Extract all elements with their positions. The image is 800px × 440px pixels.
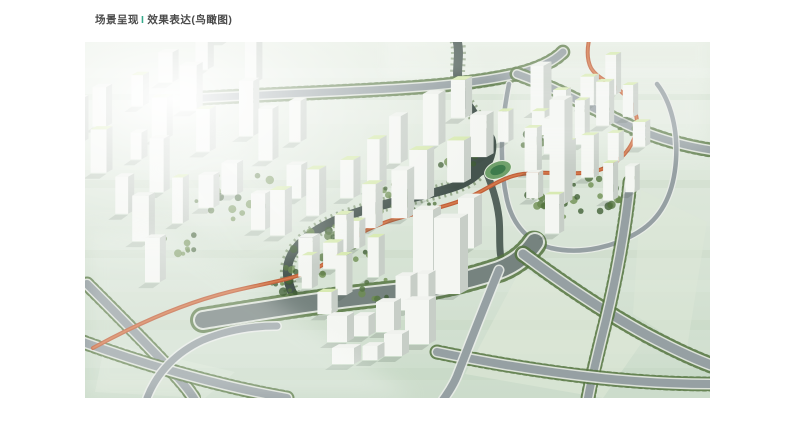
birdseye-rendering [85,42,710,398]
fog-overlay [85,42,710,398]
title-prefix: 场景呈现 [95,14,139,26]
title-suffix: 效果表达(鸟瞰图) [147,14,232,26]
title-separator: I [141,14,144,26]
aerial-rendering-image [85,42,710,398]
haze-northeast [505,72,710,152]
haze-top [385,42,710,76]
slide-canvas: 场景呈现I效果表达(鸟瞰图) [0,0,800,440]
page-title: 场景呈现I效果表达(鸟瞰图) [95,13,232,27]
